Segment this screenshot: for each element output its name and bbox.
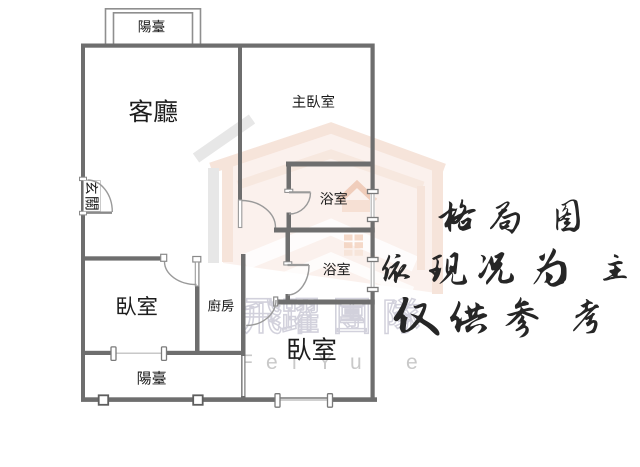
svg-text:u: u bbox=[350, 351, 362, 374]
svg-text:e: e bbox=[266, 351, 278, 374]
svg-text:e: e bbox=[406, 351, 418, 374]
